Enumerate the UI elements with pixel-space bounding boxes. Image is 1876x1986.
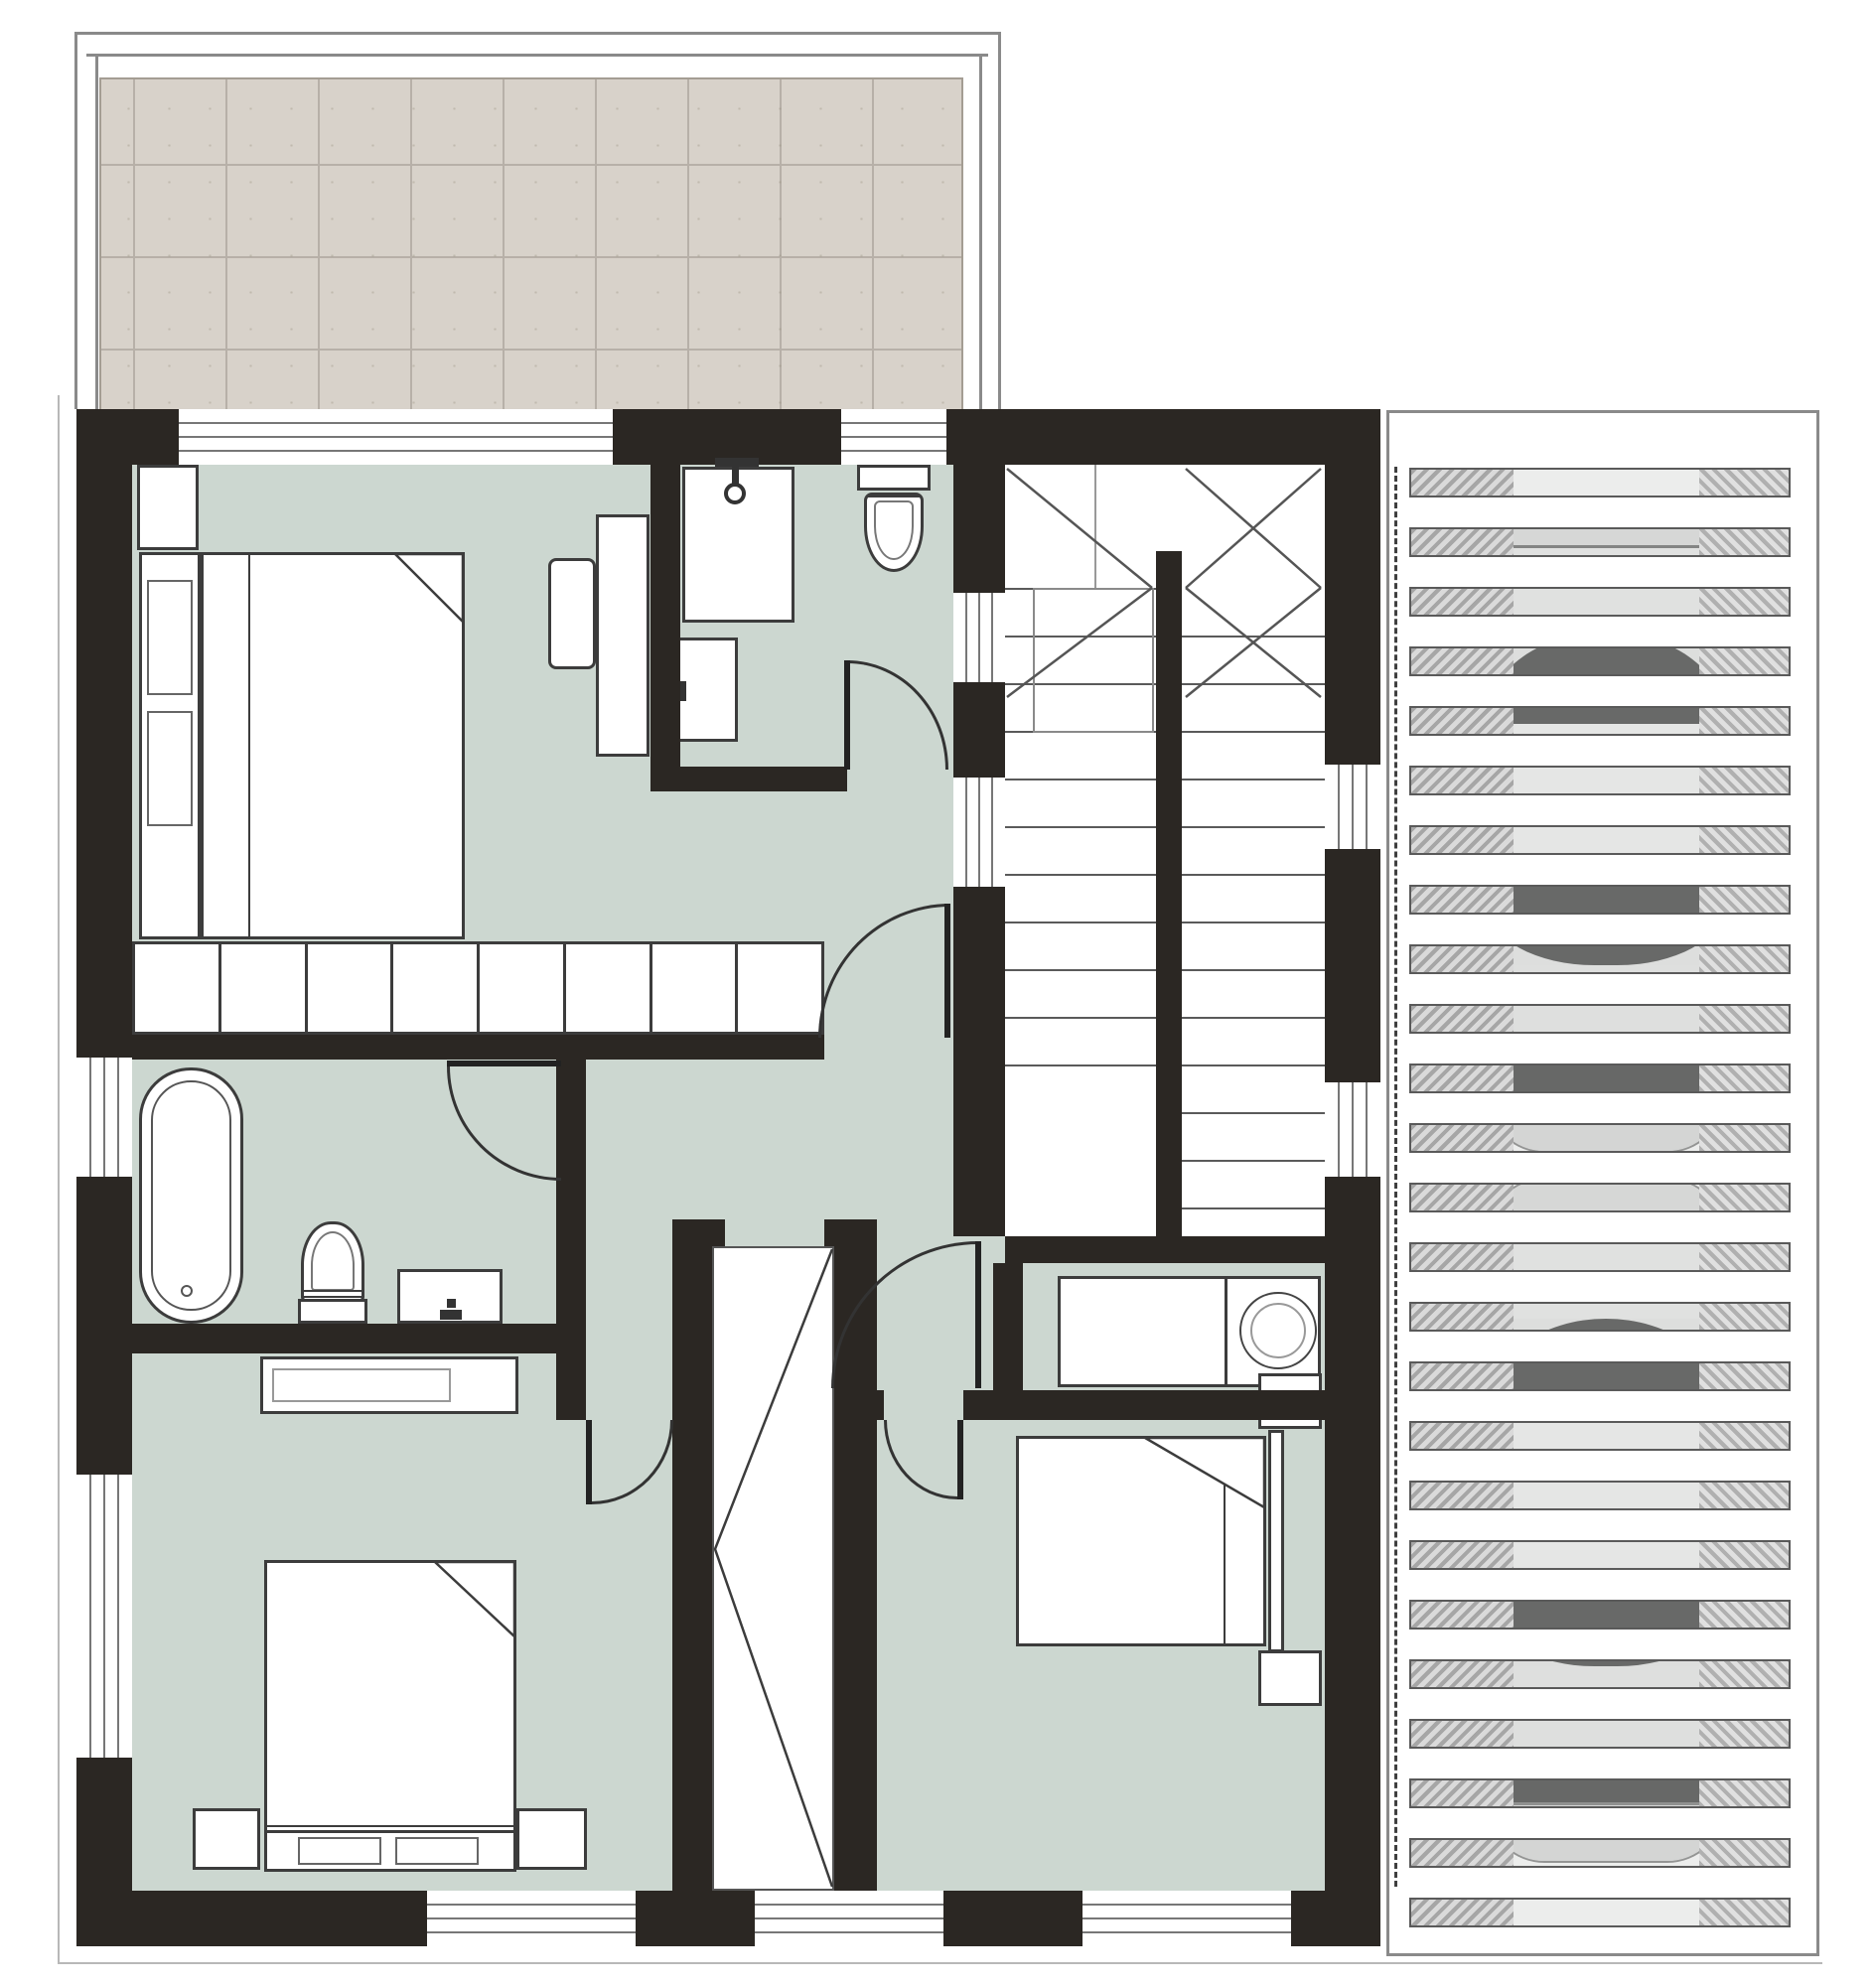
terrace-railing-top-inner bbox=[86, 54, 988, 57]
bed3-pillow-1 bbox=[298, 1837, 381, 1865]
pergola-gap-11 bbox=[1392, 1093, 1807, 1123]
pergola-slat-9 bbox=[1409, 944, 1791, 974]
pergola-gap-6 bbox=[1392, 795, 1807, 825]
pergola-slat-3 bbox=[1409, 587, 1791, 617]
stair-balustrade-upper-line-1 bbox=[965, 593, 967, 682]
pergola-slat-16 bbox=[1409, 1361, 1791, 1391]
pergola-gap-0 bbox=[1392, 413, 1807, 468]
wall-shaft-top-right bbox=[824, 1219, 877, 1246]
wall-bathroom-bottom bbox=[132, 1324, 586, 1353]
bed1-mattress bbox=[201, 552, 465, 939]
window-right-utility-line-3 bbox=[1366, 1082, 1368, 1177]
pergola-gap-12 bbox=[1392, 1153, 1807, 1183]
pergola-gap-7 bbox=[1392, 855, 1807, 885]
pergola-slat-1 bbox=[1409, 468, 1791, 497]
stair-mid-line bbox=[1094, 465, 1096, 588]
stair-balustrade-upper-line-3 bbox=[991, 593, 993, 682]
eave-line-bottom bbox=[58, 1962, 1822, 1964]
stair-tread-right-7 bbox=[1182, 922, 1325, 923]
pergola-slat-20 bbox=[1409, 1600, 1791, 1630]
window-left-bedroom3-line-2 bbox=[103, 1475, 105, 1758]
stair-balustrade-lower-line-1 bbox=[965, 778, 967, 887]
stair-tread-right-4 bbox=[1182, 779, 1325, 780]
window-left-bathroom-line-3 bbox=[117, 1058, 119, 1177]
pergola-gap-16 bbox=[1392, 1391, 1807, 1421]
stair-balustrade-lower-line-3 bbox=[991, 778, 993, 887]
wardrobe-cell-6 bbox=[563, 944, 649, 1032]
terrace bbox=[74, 32, 1003, 412]
shaft-interior bbox=[712, 1246, 834, 1891]
window-bottom-shaft-line-2 bbox=[755, 1917, 943, 1919]
laundry-counter-divider bbox=[1225, 1279, 1227, 1384]
terrace-railing-top-outer bbox=[74, 32, 1001, 35]
pergola-gap-22 bbox=[1392, 1749, 1807, 1778]
wardrobe-cell-7 bbox=[649, 944, 736, 1032]
window-top-bedroom1-line-3 bbox=[179, 450, 613, 452]
window-bottom-shaft-line-1 bbox=[755, 1904, 943, 1906]
vanity-faucet-icon bbox=[440, 1310, 462, 1320]
window-left-bathroom-line-2 bbox=[103, 1058, 105, 1177]
window-bottom-bedroom3 bbox=[427, 1891, 636, 1946]
wardrobe-cell-3 bbox=[305, 944, 391, 1032]
wall-utility-top bbox=[1005, 1236, 1325, 1263]
pergola-gap-14 bbox=[1392, 1272, 1807, 1302]
window-bottom-shaft-line-3 bbox=[755, 1931, 943, 1933]
bed3-pillow-2 bbox=[395, 1837, 479, 1865]
pergola-gap-18 bbox=[1392, 1510, 1807, 1540]
pergola-slat-21 bbox=[1409, 1659, 1791, 1689]
pergola-slat-4 bbox=[1409, 646, 1791, 676]
wardrobe-cell-2 bbox=[218, 944, 305, 1032]
toilet2-cistern bbox=[857, 465, 931, 491]
bed1-pillow-1 bbox=[147, 580, 193, 695]
wardrobe-cell-1 bbox=[135, 944, 218, 1032]
nightstand-bedroom3-left bbox=[193, 1808, 260, 1870]
window-bottom-bedroom2-line-2 bbox=[1082, 1917, 1291, 1919]
window-right-stairs-line-3 bbox=[1366, 765, 1368, 849]
stair-balustrade-upper-line-2 bbox=[978, 593, 980, 682]
pergola-slat-8 bbox=[1409, 885, 1791, 915]
window-top-shower-line-2 bbox=[841, 436, 946, 438]
bed3-sheet-line bbox=[266, 1825, 514, 1827]
window-left-bathroom-line-1 bbox=[89, 1058, 91, 1177]
stair-tread-right-2 bbox=[1182, 683, 1325, 685]
window-top-shower bbox=[841, 409, 946, 465]
pergola-slat-17 bbox=[1409, 1421, 1791, 1451]
pergola-gap-15 bbox=[1392, 1332, 1807, 1361]
stair-tread-left-11 bbox=[1005, 1064, 1156, 1066]
floor-plan bbox=[0, 0, 1876, 1986]
pergola-gap-1 bbox=[1392, 497, 1807, 527]
wardrobe-cell-4 bbox=[390, 944, 477, 1032]
wall-shaft-top-left bbox=[672, 1219, 725, 1246]
nightstand-bedroom3-right bbox=[516, 1808, 587, 1870]
stair-tread-left-8 bbox=[1005, 922, 1156, 923]
bed2-sheet-line bbox=[1224, 1438, 1226, 1644]
bed2-headboard bbox=[1268, 1430, 1284, 1652]
pergola-slat-5 bbox=[1409, 706, 1791, 736]
pergola-gap-4 bbox=[1392, 676, 1807, 706]
carport-pergola bbox=[1386, 410, 1819, 1956]
pergola-slat-13 bbox=[1409, 1183, 1791, 1212]
pergola-slat-25 bbox=[1409, 1898, 1791, 1927]
pergola-slat-24 bbox=[1409, 1838, 1791, 1868]
window-left-bedroom3-line-1 bbox=[89, 1475, 91, 1758]
terrace-railing-left-inner bbox=[95, 54, 98, 409]
window-bottom-bedroom3-line-1 bbox=[427, 1904, 636, 1906]
pergola-gap-20 bbox=[1392, 1630, 1807, 1659]
window-right-utility bbox=[1325, 1082, 1380, 1177]
pergola-slat-19 bbox=[1409, 1540, 1791, 1570]
stair-tread-right-1 bbox=[1182, 636, 1325, 638]
pergola-gap-9 bbox=[1392, 974, 1807, 1004]
pergola-slat-23 bbox=[1409, 1778, 1791, 1808]
window-bottom-bedroom2-line-3 bbox=[1082, 1931, 1291, 1933]
pergola-gap-5 bbox=[1392, 736, 1807, 766]
stair-balustrade-lower bbox=[953, 778, 1005, 887]
wardrobe-cell-8 bbox=[735, 944, 821, 1032]
stair-tread-right-3 bbox=[1182, 731, 1325, 733]
stair-tread-left-5 bbox=[1005, 779, 1156, 780]
wall-right bbox=[1325, 409, 1380, 1946]
window-left-bedroom3-line-3 bbox=[117, 1475, 119, 1758]
stair-tread-right-6 bbox=[1182, 874, 1325, 876]
window-top-shower-line-1 bbox=[841, 422, 946, 424]
pergola-gap-10 bbox=[1392, 1034, 1807, 1064]
bathtub-drain bbox=[181, 1285, 193, 1297]
pergola-slat-11 bbox=[1409, 1064, 1791, 1093]
roof-overhang-dashed-line bbox=[1394, 467, 1397, 1887]
window-left-bedroom3 bbox=[76, 1475, 132, 1758]
window-right-stairs-line-2 bbox=[1352, 765, 1354, 849]
window-bottom-bedroom2 bbox=[1082, 1891, 1291, 1946]
nightstand-bedroom2-bottom bbox=[1258, 1650, 1322, 1706]
nightstand-bedroom1 bbox=[137, 465, 199, 550]
pergola-gap-21 bbox=[1392, 1689, 1807, 1719]
bed1-sheet-line bbox=[248, 554, 250, 937]
stair-tread-left-9 bbox=[1005, 969, 1156, 971]
pergola-slat-7 bbox=[1409, 825, 1791, 855]
pergola-slat-6 bbox=[1409, 766, 1791, 795]
pergola-gap-24 bbox=[1392, 1868, 1807, 1898]
pergola-gap-17 bbox=[1392, 1451, 1807, 1481]
stair-tread-right-8 bbox=[1182, 969, 1325, 971]
wardrobe-cell-5 bbox=[477, 944, 563, 1032]
shower-tray bbox=[682, 467, 794, 623]
window-right-stairs bbox=[1325, 765, 1380, 849]
window-top-bedroom1-line-1 bbox=[179, 422, 613, 424]
terrace-railing-right-outer bbox=[998, 32, 1001, 409]
stair-tread-right-11 bbox=[1182, 1112, 1325, 1114]
pergola-gap-8 bbox=[1392, 915, 1807, 944]
stair-tread-left-6 bbox=[1005, 826, 1156, 828]
stair-tread-left-10 bbox=[1005, 1017, 1156, 1019]
window-top-bedroom1-line-2 bbox=[179, 436, 613, 438]
pergola-slat-2 bbox=[1409, 527, 1791, 557]
stair-tread-left-7 bbox=[1005, 874, 1156, 876]
pergola-gap-13 bbox=[1392, 1212, 1807, 1242]
dresser-inner-line bbox=[272, 1368, 451, 1402]
wall-bedroom2-top bbox=[963, 1390, 1325, 1420]
window-top-shower-line-3 bbox=[841, 450, 946, 452]
desk-bedroom1 bbox=[596, 514, 649, 757]
terrace-railing-right-inner bbox=[979, 54, 982, 409]
terrace-tiles bbox=[99, 77, 963, 414]
pergola-gap-23 bbox=[1392, 1808, 1807, 1838]
window-bottom-bedroom3-line-2 bbox=[427, 1917, 636, 1919]
toilet1-bowl-inner bbox=[311, 1231, 355, 1291]
window-bottom-shaft bbox=[755, 1891, 943, 1946]
wall-bedroom1-shower bbox=[650, 465, 680, 775]
eave-line-left bbox=[58, 395, 60, 1964]
stair-tread-right-12 bbox=[1182, 1160, 1325, 1162]
wall-shower-bottom bbox=[650, 767, 847, 791]
stair-tread-right-5 bbox=[1182, 826, 1325, 828]
wall-shaft-left bbox=[672, 1246, 712, 1891]
pergola-gap-2 bbox=[1392, 557, 1807, 587]
bathtub-inner bbox=[151, 1080, 231, 1311]
window-left-bathroom bbox=[76, 1058, 132, 1177]
stair-balustrade-upper bbox=[953, 593, 1005, 682]
window-top-bedroom1 bbox=[179, 409, 613, 465]
stair-balustrade-lower-line-2 bbox=[978, 778, 980, 887]
bed2-mattress bbox=[1016, 1436, 1266, 1646]
toilet1-cistern bbox=[298, 1299, 367, 1324]
window-right-utility-line-2 bbox=[1352, 1082, 1354, 1177]
pergola-slat-12 bbox=[1409, 1123, 1791, 1153]
terrace-railing-left-outer bbox=[74, 32, 77, 409]
window-bottom-bedroom2-line-1 bbox=[1082, 1904, 1291, 1906]
pergola-gap-last bbox=[1392, 1927, 1807, 1953]
wall-bedroom1-hall bbox=[132, 1035, 824, 1060]
pergola-slat-14 bbox=[1409, 1242, 1791, 1272]
pergola-slat-10 bbox=[1409, 1004, 1791, 1034]
stair-tread-right-13 bbox=[1182, 1207, 1325, 1209]
pergola-slat-18 bbox=[1409, 1481, 1791, 1510]
pergola-slat-22 bbox=[1409, 1719, 1791, 1749]
pergola-gap-3 bbox=[1392, 617, 1807, 646]
window-right-stairs-line-1 bbox=[1338, 765, 1340, 849]
stair-tread-right-9 bbox=[1182, 1017, 1325, 1019]
pergola-gap-19 bbox=[1392, 1570, 1807, 1600]
vanity-faucet-knob bbox=[447, 1299, 456, 1308]
pergola-slat-15 bbox=[1409, 1302, 1791, 1332]
wall-stair-spine bbox=[1156, 551, 1182, 1236]
chair-bedroom1 bbox=[548, 558, 596, 669]
washing-machine-drum-inner bbox=[1250, 1303, 1306, 1358]
window-right-utility-line-1 bbox=[1338, 1082, 1340, 1177]
stair-tread-right-10 bbox=[1182, 1064, 1325, 1066]
window-bottom-bedroom3-line-3 bbox=[427, 1931, 636, 1933]
wardrobe-row-bedroom1 bbox=[132, 941, 824, 1035]
stair-landing-outline bbox=[1033, 588, 1154, 733]
bed1-pillow-2 bbox=[147, 711, 193, 826]
